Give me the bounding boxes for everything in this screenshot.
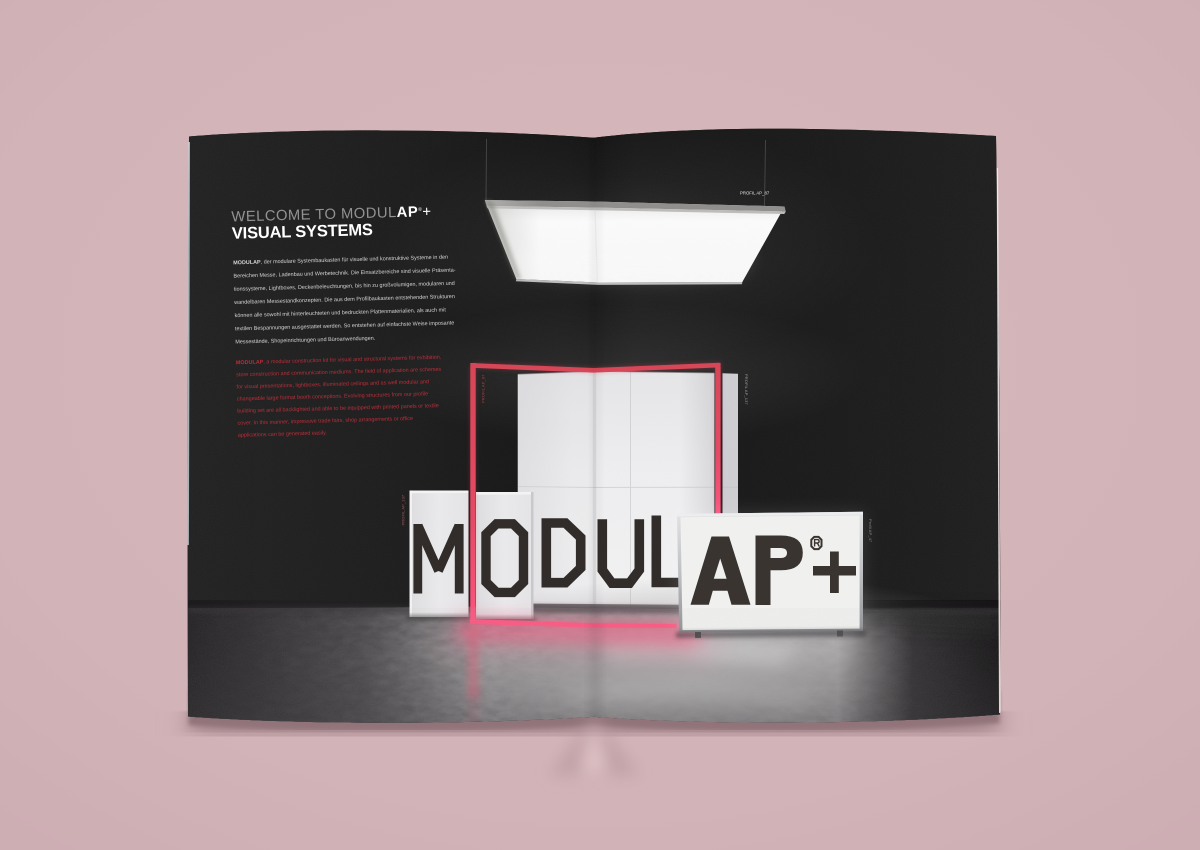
svg-text:VISUAL SYSTEMS: VISUAL SYSTEMS [232,221,373,243]
